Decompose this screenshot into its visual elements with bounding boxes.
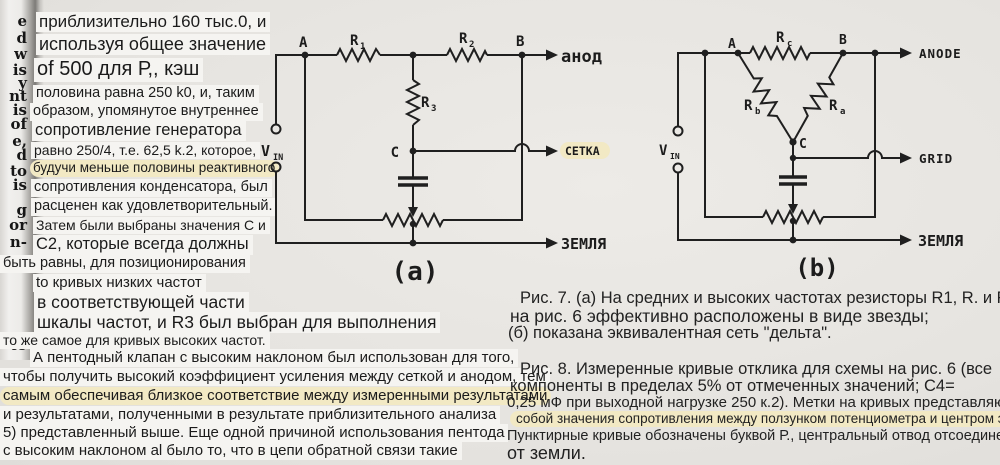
- node-label-b: B: [516, 34, 524, 50]
- margin-text-fragment: or: [0, 218, 27, 233]
- text-line: шкалы частот, и R3 был выбран для выполн…: [34, 312, 440, 333]
- resistor-rb: [732, 49, 799, 145]
- vin-subscript: IN: [670, 152, 680, 161]
- caption-line: компоненты в пределах 5% от отмеченных з…: [510, 378, 955, 395]
- text-line: сопротивления конденсатора, был: [31, 179, 272, 197]
- resistor-rc: [750, 47, 810, 59]
- text-line: половина равна 250 k0, и, таким: [33, 85, 259, 103]
- grid-wire-hop: [793, 151, 900, 158]
- vin-subscript: IN: [273, 153, 283, 163]
- subfigure-tag-b: (b): [795, 254, 838, 282]
- vin-label: V: [261, 142, 270, 160]
- resistor-r2: [447, 49, 487, 61]
- anode-label: ANODE: [919, 46, 962, 61]
- circuit-diagram-delta: A B C R c R b R a V IN ANODE GRID ЗЕМЛЯ …: [655, 25, 1000, 283]
- text-line: в соответствующей части: [34, 292, 249, 313]
- text-line: Затем были выбраны значения С и: [33, 217, 270, 234]
- r1-subscript: 1: [360, 42, 365, 52]
- r3-label: R: [421, 95, 430, 111]
- text-line: и результатами, полученными в результате…: [0, 406, 500, 424]
- grid-arrow: [900, 153, 912, 164]
- text-line: быть равны, для позиционирования: [0, 255, 250, 273]
- text-line: равно 250/4, т.е. 62,5 k.2, которое,: [31, 142, 260, 159]
- rb-subscript: b: [755, 107, 761, 117]
- ra-subscript: a: [840, 107, 845, 117]
- margin-text-fragment: e: [0, 14, 27, 29]
- text-line: 5) представленный выше. Еще одной причин…: [0, 424, 508, 442]
- caption-line: (б) показана эквивалентная сеть "дельта"…: [508, 325, 832, 342]
- input-terminal-bottom: [272, 163, 281, 172]
- margin-text-fragment: n-: [0, 235, 27, 250]
- caption-line: Рис. 8. Измеренные кривые отклика для сх…: [520, 361, 992, 378]
- highlighted-text-line: будучи меньше половины реактивного: [30, 160, 279, 177]
- ground-label: ЗЕМЛЯ: [918, 232, 963, 250]
- resistor-r1: [337, 49, 380, 61]
- grid-label: GRID: [919, 151, 953, 166]
- circuit-diagram-star: A B C R 1 R 2 R 3 V IN анод СЕТКА ЗЕМЛЯ …: [255, 25, 645, 285]
- ground-label: ЗЕМЛЯ: [561, 235, 606, 253]
- ground-arrow: [546, 238, 558, 249]
- caption-line: 0,25 мФ при выходной нагрузке 250 к.2). …: [507, 395, 1000, 411]
- ra-label: R: [829, 98, 838, 114]
- text-line: to кривых низких частот: [33, 274, 206, 292]
- grid-wire-hop: [413, 144, 546, 151]
- r1-label: R: [350, 33, 359, 49]
- resistor-ra: [787, 50, 849, 146]
- r2-label: R: [459, 31, 468, 47]
- text-line: используя общее значение: [36, 34, 270, 55]
- node-label-a: A: [299, 35, 308, 51]
- ground-arrow: [900, 235, 912, 246]
- margin-text-fragment: of: [0, 117, 27, 132]
- input-terminal-top: [674, 127, 683, 136]
- text-line: с высоким наклоном al было то, что в цеп…: [0, 442, 462, 460]
- caption-line: Пунктирные кривые обозначены буквой Р., …: [507, 429, 1000, 444]
- node-label-c: C: [799, 137, 807, 152]
- highlighted-caption-line: собой значения сопротивления между ползу…: [510, 411, 1000, 427]
- text-line: расценен как удовлетворительный.: [31, 198, 277, 216]
- rb-label: R: [744, 98, 753, 114]
- caption-line: Рис. 7. (а) На средних и высоких частота…: [520, 290, 1000, 307]
- anode-label: анод: [561, 47, 602, 67]
- text-line: образом, упомянутое внутреннее: [30, 103, 263, 121]
- rc-subscript: c: [787, 39, 792, 49]
- vin-label: V: [659, 143, 668, 159]
- text-line: С2, которые всегда должны: [33, 235, 253, 255]
- subfigure-tag-a: (a): [392, 257, 439, 285]
- margin-text-fragment: w: [0, 47, 27, 62]
- text-line: приблизительно 160 тыс.0, и: [36, 12, 270, 32]
- text-line: чтобы получить высокий коэффициент усиле…: [0, 368, 550, 386]
- scanned-page: e d w is y nt is of e, d to is g or n- t…: [0, 0, 1000, 465]
- text-line: то же самое для кривых высоких частот.: [0, 332, 270, 349]
- node-label-b: B: [839, 33, 847, 48]
- margin-text-fragment: d: [0, 31, 27, 46]
- anode-arrow: [900, 48, 912, 59]
- node-label-c: C: [391, 145, 399, 161]
- input-terminal-bottom: [674, 164, 683, 173]
- text-line: А пентодный клапан с высоким наклоном бы…: [30, 349, 518, 367]
- text-line: of 500 для Р,, кэш: [34, 58, 203, 82]
- grid-arrow: [546, 146, 558, 157]
- text-line: сопротивление генератора: [32, 121, 246, 141]
- resistor-r3: [407, 80, 419, 125]
- grid-label: СЕТКА: [565, 144, 600, 158]
- anode-arrow: [546, 50, 558, 61]
- margin-text-fragment: d: [0, 148, 27, 163]
- node-label-a: A: [728, 37, 736, 52]
- caption-line: от земли.: [507, 444, 586, 463]
- r3-subscript: 3: [431, 104, 436, 114]
- rc-label: R: [776, 30, 785, 46]
- input-terminal-top: [272, 125, 281, 134]
- r2-subscript: 2: [469, 40, 474, 50]
- highlighted-text-line: самым обеспечивая близкое соответствие м…: [0, 387, 551, 405]
- margin-text-fragment: is: [0, 178, 27, 193]
- caption-line: на рис. 6 эффективно расположены в виде …: [510, 307, 929, 325]
